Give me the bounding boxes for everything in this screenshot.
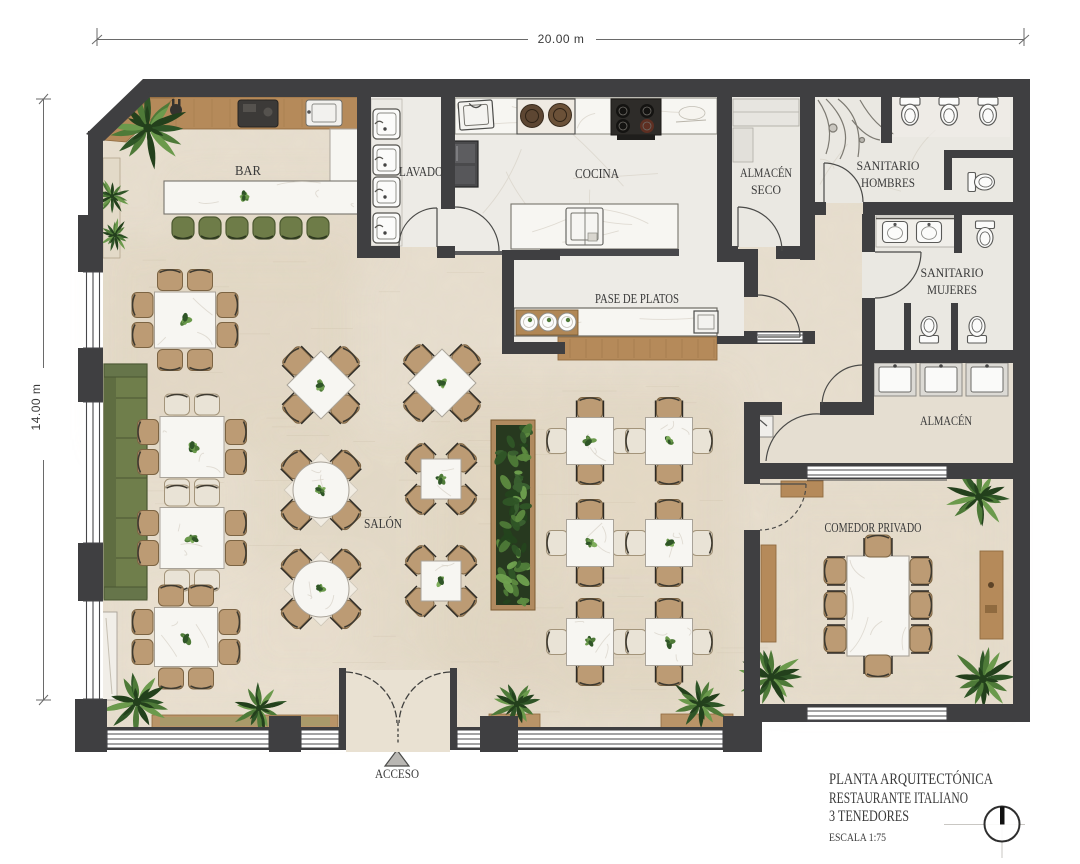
svg-text:COCINA: COCINA — [575, 166, 619, 181]
svg-text:BAR: BAR — [235, 163, 261, 178]
svg-text:RESTAURANTE ITALIANO: RESTAURANTE ITALIANO — [829, 790, 968, 807]
svg-text:14.00 m: 14.00 m — [29, 384, 43, 431]
svg-text:ESCALA 1:75: ESCALA 1:75 — [829, 830, 886, 844]
svg-text:20.00 m: 20.00 m — [538, 32, 585, 46]
svg-text:SECO: SECO — [751, 182, 781, 197]
svg-text:PASE DE PLATOS: PASE DE PLATOS — [595, 291, 679, 306]
svg-text:PLANTA ARQUITECTÓNICA: PLANTA ARQUITECTÓNICA — [829, 771, 994, 788]
svg-text:LAVADO: LAVADO — [399, 164, 443, 179]
svg-text:SALÓN: SALÓN — [364, 516, 402, 531]
svg-text:COMEDOR PRIVADO: COMEDOR PRIVADO — [825, 520, 922, 535]
svg-text:ALMACÉN: ALMACÉN — [740, 165, 792, 180]
svg-text:SANITARIO: SANITARIO — [857, 158, 920, 173]
svg-text:ACCESO: ACCESO — [375, 766, 419, 781]
svg-text:HOMBRES: HOMBRES — [861, 175, 915, 190]
svg-text:MUJERES: MUJERES — [927, 282, 977, 297]
svg-text:3 TENEDORES: 3 TENEDORES — [829, 808, 909, 825]
svg-text:ALMACÉN: ALMACÉN — [920, 413, 972, 428]
svg-text:SANITARIO: SANITARIO — [921, 265, 984, 280]
